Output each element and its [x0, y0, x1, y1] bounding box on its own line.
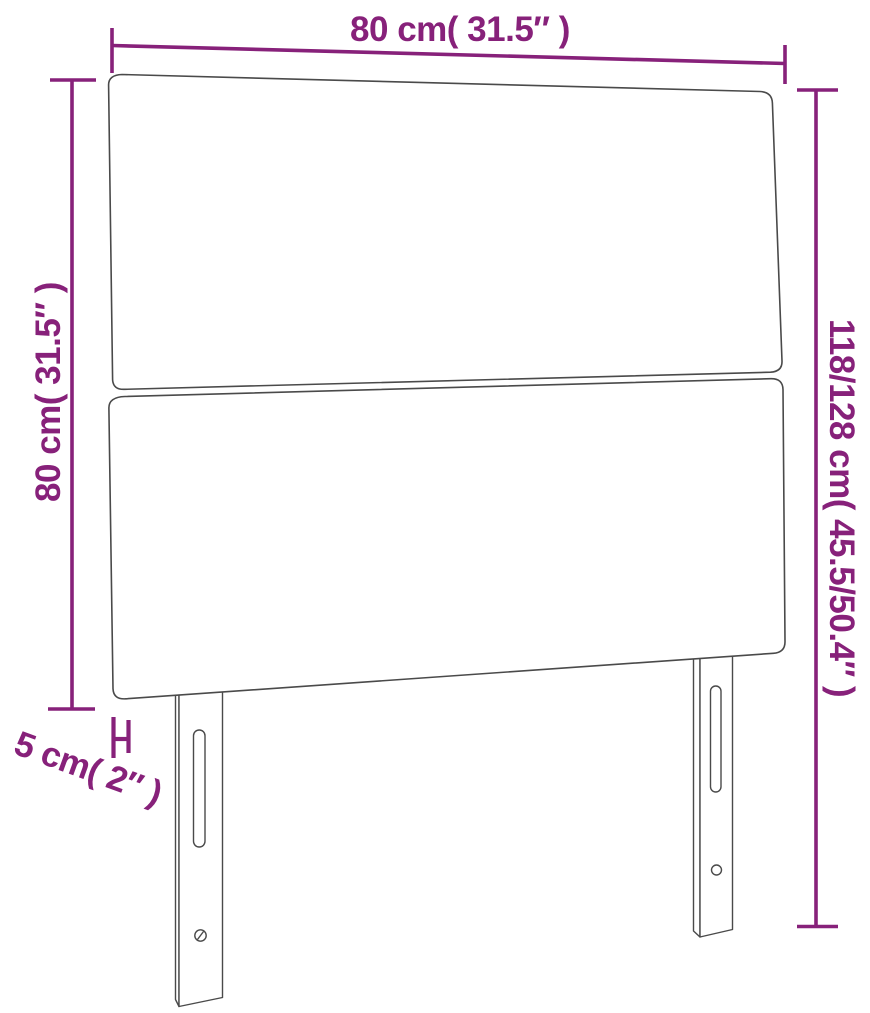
right-leg	[694, 645, 733, 937]
panel-height-dimension-label: 80 cm( 31.5″ )	[29, 282, 68, 502]
headboard-bottom-panel	[109, 379, 785, 699]
thickness-dimension: 5 cm( 2″ )	[9, 717, 167, 813]
left-leg	[176, 685, 223, 1007]
total-height-dimension: 118/128 cm( 45.5/50.4″ )	[797, 90, 861, 927]
diagram-canvas: 80 cm( 31.5″ ) 80 cm( 31.5″ ) 118/128 cm…	[0, 0, 870, 1013]
headboard-dimension-diagram: 80 cm( 31.5″ ) 80 cm( 31.5″ ) 118/128 cm…	[0, 0, 870, 1013]
headboard-body	[109, 75, 785, 699]
right-leg-screw-hole	[712, 865, 722, 875]
thickness-dimension-label: 5 cm( 2″ )	[9, 724, 167, 813]
right-leg-slot	[711, 686, 722, 792]
headboard-top-panel	[109, 75, 782, 390]
width-dimension-label: 80 cm( 31.5″ )	[350, 10, 570, 49]
left-leg-slot	[194, 730, 206, 847]
width-dimension: 80 cm( 31.5″ )	[112, 10, 785, 84]
right-leg-side-face	[694, 647, 701, 937]
panel-height-dimension: 80 cm( 31.5″ )	[29, 80, 96, 709]
total-height-dimension-label: 118/128 cm( 45.5/50.4″ )	[822, 319, 861, 697]
